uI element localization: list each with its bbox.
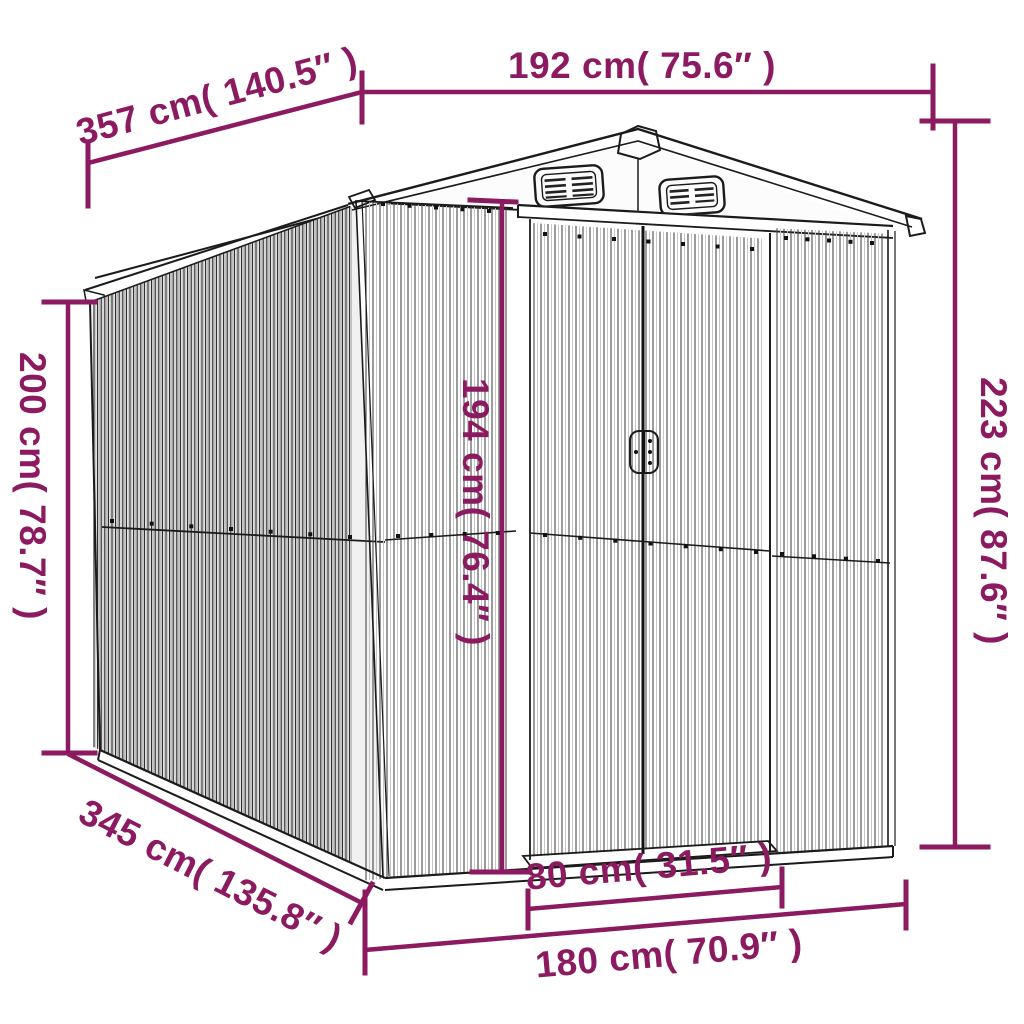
screw-dot bbox=[429, 533, 433, 537]
screw-dot bbox=[613, 539, 617, 543]
dim-door-height: 194 cm( 76.4″ ) bbox=[455, 200, 527, 872]
screw-dot bbox=[780, 552, 784, 556]
screw-dot bbox=[806, 237, 810, 241]
screw-dot bbox=[784, 236, 788, 240]
door-handle bbox=[630, 431, 658, 473]
screw-dot bbox=[434, 206, 438, 210]
screw-dot bbox=[684, 544, 688, 548]
screw-dot bbox=[189, 524, 193, 528]
dim-total-height-right: 223 cm( 87.6″ ) bbox=[922, 121, 1014, 847]
screw-dot bbox=[381, 202, 385, 206]
screw-dot bbox=[578, 235, 582, 239]
screw-dot bbox=[716, 245, 720, 249]
dim-wall-height-left: 200 cm( 78.7″ ) bbox=[12, 302, 95, 753]
screw-dot bbox=[396, 534, 400, 538]
screw-dot bbox=[754, 550, 758, 554]
dim-door-width: 80 cm( 31.5″ ) bbox=[524, 835, 782, 928]
label-diagonal-depth-top: 357 cm( 140.5″ ) bbox=[72, 39, 362, 153]
screw-dot bbox=[876, 559, 880, 563]
screw-dot bbox=[681, 242, 685, 246]
screw-dot bbox=[110, 519, 114, 523]
screw-dot bbox=[543, 533, 547, 537]
screw-dot bbox=[849, 240, 853, 244]
label-roof-width: 192 cm( 75.6″ ) bbox=[508, 45, 776, 86]
screw-dot bbox=[812, 554, 816, 558]
door-corrugation bbox=[534, 223, 762, 856]
screw-dot bbox=[844, 557, 848, 561]
screw-dot bbox=[750, 247, 754, 251]
screw-dot bbox=[870, 241, 874, 245]
screw-dot bbox=[578, 536, 582, 540]
dim-roof-width: 192 cm( 75.6″ ) bbox=[362, 45, 933, 128]
dim-diagonal-depth-top: 357 cm( 140.5″ ) bbox=[72, 39, 362, 206]
screw-dot bbox=[408, 204, 412, 208]
screw-dot bbox=[229, 527, 233, 531]
label-door-height: 194 cm( 76.4″ ) bbox=[455, 378, 496, 646]
screw-dot bbox=[827, 239, 831, 243]
screw-dot bbox=[150, 522, 154, 526]
screw-dot bbox=[719, 547, 723, 551]
screw-dot bbox=[647, 240, 651, 244]
screw-dot bbox=[612, 237, 616, 241]
screw-dot bbox=[649, 542, 653, 546]
screw-dot bbox=[543, 232, 547, 236]
screw-dot bbox=[487, 209, 491, 213]
screw-dot bbox=[348, 535, 352, 539]
screw-dot bbox=[461, 207, 465, 211]
shed-drawing bbox=[84, 126, 925, 890]
shed-dimension-diagram: 192 cm( 75.6″ ) 357 cm( 140.5″ ) 200 cm(… bbox=[0, 0, 1024, 1024]
label-total-height-right: 223 cm( 87.6″ ) bbox=[973, 377, 1014, 645]
front-right-panel-seam bbox=[772, 556, 890, 563]
label-wall-height-left: 200 cm( 78.7″ ) bbox=[12, 352, 53, 620]
screw-dot bbox=[269, 530, 273, 534]
screw-dot bbox=[308, 532, 312, 536]
diagram-canvas: 192 cm( 75.6″ ) 357 cm( 140.5″ ) 200 cm(… bbox=[0, 0, 1024, 1024]
front-right-panel-corrugation bbox=[777, 228, 882, 854]
